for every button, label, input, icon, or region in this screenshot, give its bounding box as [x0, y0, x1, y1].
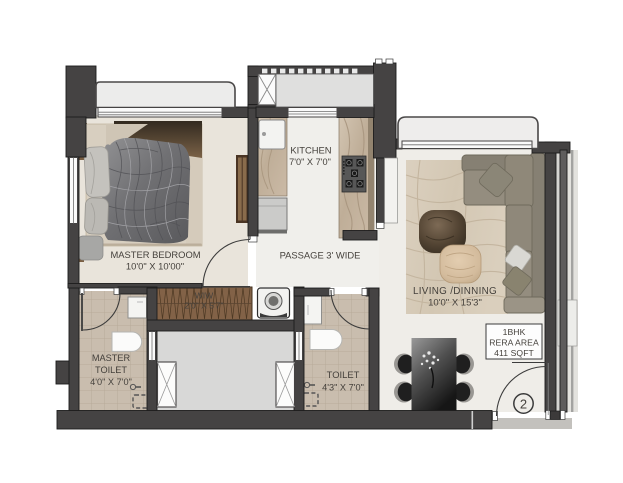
svg-text:TOILET: TOILET — [327, 369, 360, 380]
svg-text:2'0" X 5'7": 2'0" X 5'7" — [184, 301, 223, 311]
svg-text:10'0" X 10'00": 10'0" X 10'00" — [126, 261, 184, 272]
svg-text:MASTER: MASTER — [92, 353, 131, 363]
svg-text:10'0" X 15'3": 10'0" X 15'3" — [428, 298, 482, 309]
svg-text:MASTER BEDROOM: MASTER BEDROOM — [110, 249, 200, 260]
svg-text:WIW: WIW — [195, 291, 214, 301]
svg-text:1BHK: 1BHK — [503, 327, 526, 337]
svg-text:KITCHEN: KITCHEN — [290, 145, 331, 156]
svg-text:4'3" X 7'0": 4'3" X 7'0" — [322, 383, 364, 393]
svg-text:411 SQFT: 411 SQFT — [494, 348, 534, 358]
svg-text:4'0" X 7'0": 4'0" X 7'0" — [90, 377, 132, 387]
svg-text:LIVING /DINNING: LIVING /DINNING — [413, 286, 497, 297]
svg-text:RERA AREA: RERA AREA — [489, 338, 539, 348]
svg-text:PASSAGE 3' WIDE: PASSAGE 3' WIDE — [280, 250, 361, 261]
svg-text:2: 2 — [520, 397, 527, 412]
svg-text:TOILET: TOILET — [95, 365, 127, 375]
svg-text:7'0" X 7'0": 7'0" X 7'0" — [289, 157, 331, 167]
